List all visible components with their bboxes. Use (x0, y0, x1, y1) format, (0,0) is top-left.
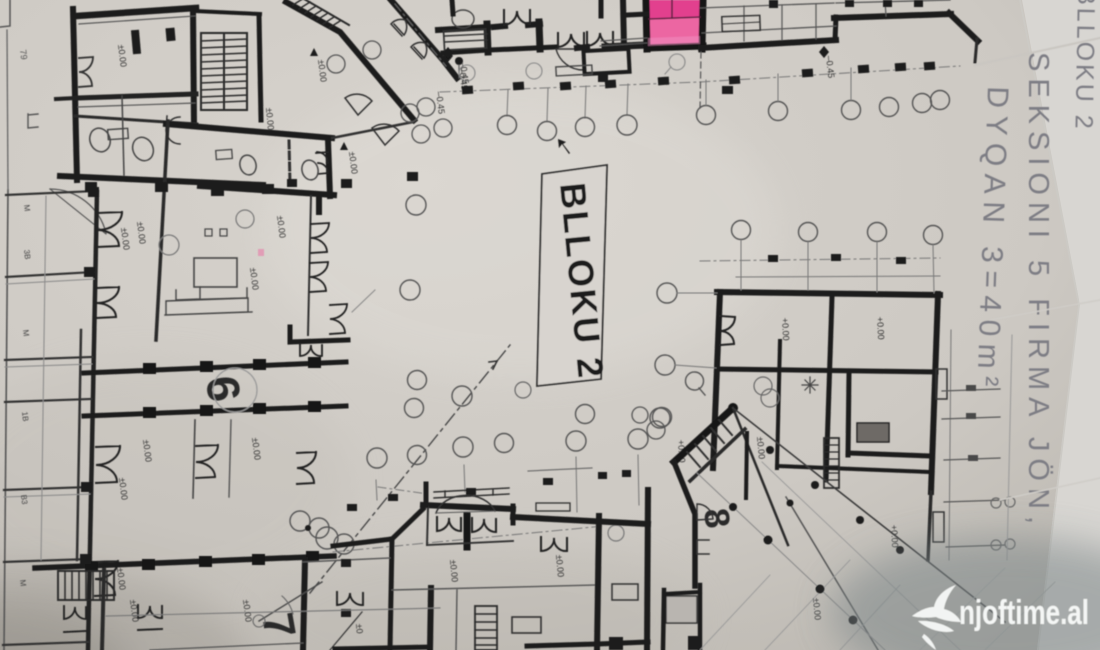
svg-text:79: 79 (18, 49, 29, 60)
svg-text:±0.00: ±0.00 (264, 107, 276, 130)
svg-text:+0.00: +0.00 (875, 317, 886, 340)
svg-text:njoftime.al: njoftime.al (959, 594, 1089, 632)
svg-text:±0.00: ±0.00 (448, 559, 460, 582)
svg-text:SEKSIONI 5 FIRMA JÖN,: SEKSIONI 5 FIRMA JÖN, (1022, 52, 1054, 531)
svg-text:±0.00: ±0.00 (554, 554, 566, 577)
svg-text:3B: 3B (22, 249, 32, 260)
svg-text:±0.00: ±0.00 (755, 436, 767, 459)
svg-text:1B: 1B (20, 411, 30, 422)
svg-text:±0: ±0 (354, 623, 365, 634)
svg-text:+0.00: +0.00 (889, 525, 900, 548)
svg-text:±0.00: ±0.00 (811, 597, 823, 620)
svg-text:BLLOKU 2: BLLOKU 2 (1069, 0, 1100, 132)
svg-text:+0.00: +0.00 (780, 318, 791, 341)
svg-text:B3: B3 (19, 494, 29, 505)
